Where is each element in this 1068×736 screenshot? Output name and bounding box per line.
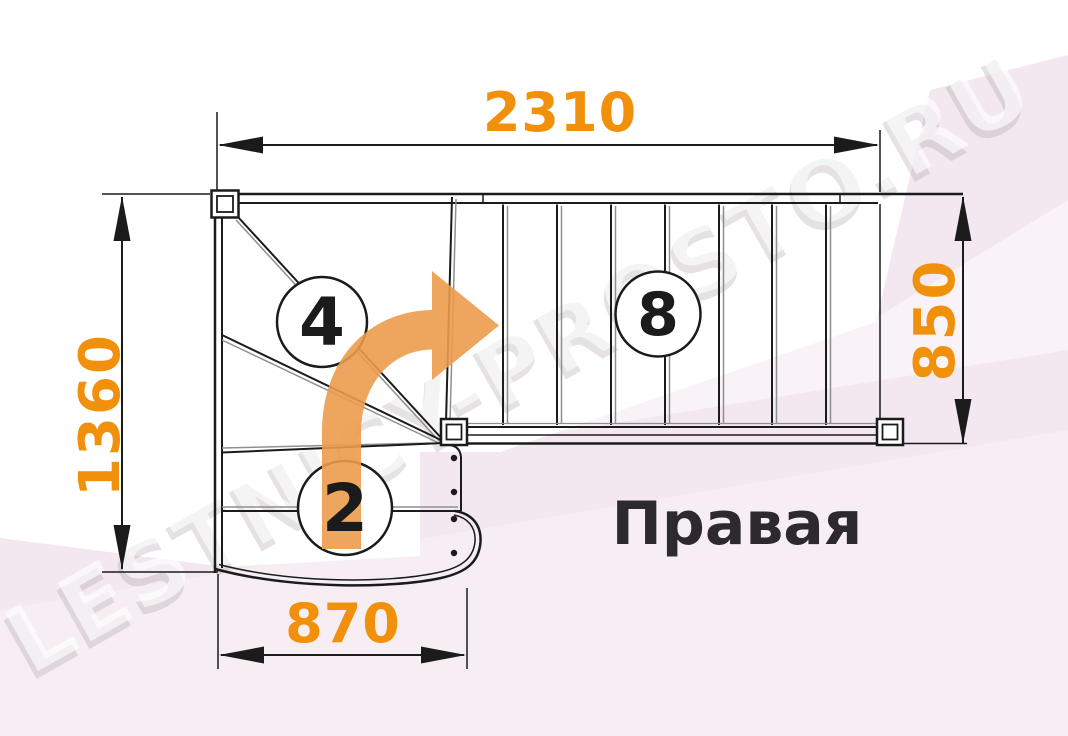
plan-title: Правая — [612, 489, 863, 559]
dimension-left-label: 1360 — [68, 333, 133, 497]
upper-step-count: 8 — [637, 280, 679, 350]
staircase-plan-diagram: LESTNICY-PROSTO.RU LESTNICY-PROSTO.RU — [0, 0, 1068, 736]
dimension-top-label: 2310 — [483, 81, 637, 144]
staircase-plan-page: LESTNICY-PROSTO.RU LESTNICY-PROSTO.RU — [0, 0, 1068, 736]
winder-step-count: 4 — [299, 284, 345, 361]
dimension-bottom-label: 870 — [285, 592, 401, 655]
dimension-right-label: 850 — [903, 259, 968, 382]
lower-step-count: 2 — [322, 470, 368, 547]
